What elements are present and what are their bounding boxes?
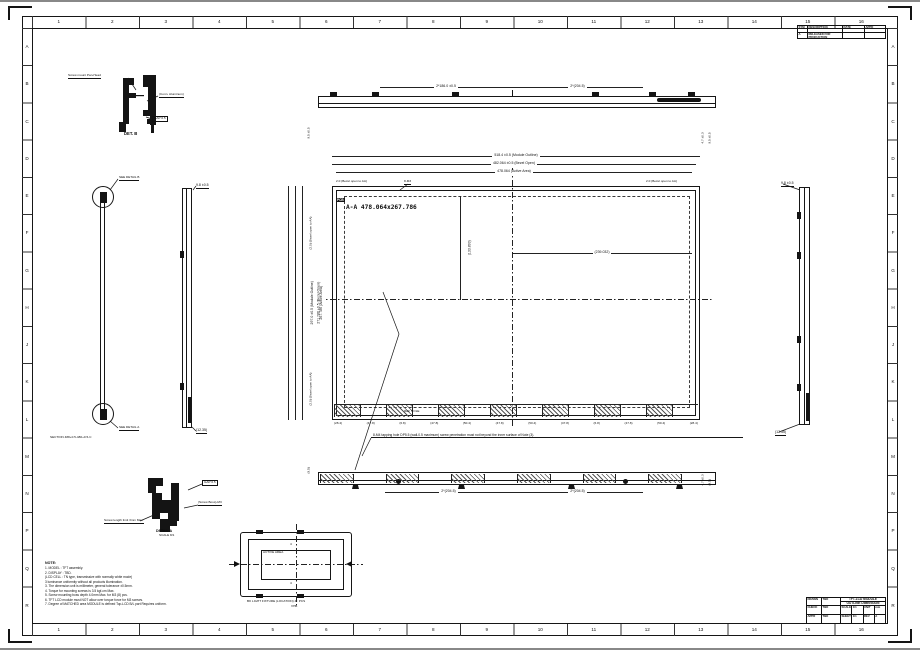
rev-col-description: DESCRIPTION — [808, 26, 843, 33]
zone-row-label: J — [22, 326, 32, 363]
title-block: DRAWN TBD CHECK TBD APPR TBD TFT-LCD MOD… — [806, 597, 886, 624]
mount-dim-value: (28.4) — [690, 421, 698, 425]
zone-col-label: 5 — [246, 16, 300, 28]
zone-col-label: 14 — [728, 624, 782, 636]
mount-strip-dims: (28.4)(47.8)(6.8)(47.8)(50.4)(47.8)(50.4… — [334, 421, 698, 425]
rev-col-appd: APPD — [865, 26, 885, 33]
mount-hole-callout: 8-M3 — [404, 180, 411, 185]
bottom-view-dim-right: 2*(204.5) — [512, 492, 643, 494]
zone-band-top: 12345678910111213141516 — [32, 16, 888, 28]
unit-value: mm — [875, 606, 885, 614]
check-label: CHECK — [807, 606, 822, 614]
rev-row-appd — [865, 33, 885, 39]
bottom-view-rot-dim-right2: (9.5) — [708, 479, 712, 485]
zone-row-label: F — [888, 214, 898, 251]
front-view-mount-strip — [334, 404, 698, 417]
top-view-dim-right: 2*(204.5) — [512, 87, 643, 89]
title-block-main: TFT-LCD MODULE OUTLINE DIMENSION SCALE 1… — [841, 598, 885, 623]
see-detail-a-label: SEE DETAIL A — [119, 426, 139, 431]
see-detail-b-label: SEE DETAIL B — [119, 176, 139, 181]
zone-row-label: R — [22, 587, 32, 624]
scale-value: 1/1 — [852, 606, 863, 614]
section-profile-line — [100, 196, 105, 416]
left-side-bottom-dim: (12.35) — [196, 428, 207, 434]
top-view-rot-dim-right1: 4.7 ±0.3 — [701, 132, 705, 143]
notes-list: 1. MODEL : TFT assembly.2. DISPLAY : TBD… — [45, 566, 245, 607]
zone-row-label: E — [22, 177, 32, 214]
fixture-pad-bottom-2 — [297, 594, 304, 598]
check-value: TBD — [822, 606, 841, 614]
detail-circle-bottom — [92, 403, 114, 425]
note-item: 7. Degree of MATCHED area MODULE is defi… — [45, 602, 245, 607]
zone-col-label: 12 — [621, 624, 675, 636]
mount-dim-value: (50.4) — [657, 421, 665, 425]
zone-band-right: ABCDEFGHJKLMNPQR — [888, 28, 898, 624]
dim-active-area-h: 478.064 (Active Area) — [336, 172, 692, 174]
zone-col-label: 7 — [353, 16, 407, 28]
zone-row-label: G — [888, 252, 898, 289]
zone-row-label: D — [22, 140, 32, 177]
fixture-active-area-label: ACTIVE AREA — [263, 551, 283, 555]
mount-dim-value: (28.4) — [334, 421, 342, 425]
zone-row-label: K — [22, 363, 32, 400]
detail-a-gap-label: GAP 0.5 — [202, 480, 218, 486]
left-side-top-dim: 9.8 ±0.5 — [196, 183, 209, 189]
zone-row-label: A — [888, 28, 898, 65]
appr-value: TBD — [822, 615, 841, 623]
bezel-open-offset-left: 2.0 (Bezel open to AA) — [336, 180, 367, 184]
zone-col-label: 10 — [514, 16, 568, 28]
zone-col-label: 10 — [514, 624, 568, 636]
rev-row-description: RELEASED FOR PRODUCTION — [808, 33, 843, 39]
top-view-rot-dim-left: 9.5 ±0.5 — [307, 127, 311, 138]
detail-b-gap-label: GAP 0.5 — [152, 116, 168, 122]
right-side-top-dim: 9.8 ±0.5 — [781, 181, 794, 187]
fixture-mark-bottom: 4 — [290, 582, 292, 586]
scale-label: SCALE — [841, 606, 852, 614]
right-side-tab-4 — [797, 384, 801, 391]
zone-band-left: ABCDEFGHJKLMNPQR — [22, 28, 32, 624]
zone-row-label: L — [888, 401, 898, 438]
mount-dim-value: (50.4) — [463, 421, 471, 425]
bottom-view-rot-dim-left: (9.5) — [307, 467, 311, 473]
zone-col-label: 8 — [407, 624, 461, 636]
detail-b-caption: DET. B — [124, 131, 137, 136]
bottom-view-dim-left: 2*(204.5) — [385, 492, 512, 494]
zone-row-label: D — [888, 140, 898, 177]
left-side-tab-2 — [180, 383, 184, 390]
zone-row-label: P — [22, 512, 32, 549]
zone-col-label: 8 — [407, 16, 461, 28]
mount-dim-value: (47.8) — [624, 421, 632, 425]
zone-row-label: R — [888, 587, 898, 624]
front-view-horizontal-centerline — [318, 299, 714, 300]
bottom-view-tab-2 — [458, 485, 465, 489]
bottom-view-tab-1 — [352, 485, 359, 489]
zone-row-label: G — [22, 252, 32, 289]
bezel-open-offset-bottom-rot: (2.0) (Bezel open to AA) — [309, 373, 313, 406]
zone-row-label: M — [22, 438, 32, 475]
zone-row-label: N — [22, 475, 32, 512]
bezel-open-offset-top-rot: (2.0) (Bezel open to AA) — [309, 217, 313, 250]
bottom-view-screw-1 — [396, 479, 401, 484]
rev-col-date: DATE — [843, 26, 865, 33]
zone-col-label: 16 — [835, 624, 889, 636]
zone-col-label: 2 — [86, 16, 140, 28]
top-view-rot-dim-right2: 9.5 ±0.5 — [708, 132, 712, 143]
zone-row-label: A — [22, 28, 32, 65]
right-side-view — [799, 187, 810, 425]
front-view-half-width-line: (239.032) — [512, 253, 692, 255]
right-side-tab-1 — [797, 212, 801, 219]
rev-row-sym: A — [798, 33, 808, 39]
zone-row-label: H — [888, 289, 898, 326]
zone-row-label: L — [22, 401, 32, 438]
zone-row-label: M — [888, 438, 898, 475]
rev-value: A — [875, 615, 885, 623]
zone-row-label: Q — [888, 550, 898, 587]
fixture-mark-top: 4 — [290, 543, 292, 547]
zone-col-label: 6 — [300, 624, 354, 636]
zone-row-label: E — [888, 177, 898, 214]
detail-a-screw-label: Screw length limit 3mm Max. — [104, 519, 144, 524]
mounting-note-underline: 8-M4 tapping hole DP5.5 (wall-0.5 maximu… — [371, 437, 743, 438]
zone-col-label: 11 — [567, 624, 621, 636]
zone-col-label: 2 — [86, 624, 140, 636]
zone-col-label: 14 — [728, 16, 782, 28]
revision-table: SYM DESCRIPTION DATE APPD A RELEASED FOR… — [797, 25, 886, 39]
page-edge-bottom — [0, 648, 920, 650]
mount-dim-value: (47.8) — [367, 421, 375, 425]
detail-b-frame-label: (Conn. Aluminum) — [159, 93, 184, 98]
zone-col-label: 4 — [193, 16, 247, 28]
top-view-tab-4 — [592, 92, 599, 96]
ref-hole-label: REF HOLE — [404, 410, 419, 414]
mount-dim-value: (50.4) — [528, 421, 536, 425]
zone-col-label: 15 — [781, 624, 835, 636]
front-view-vertical-centerline — [512, 168, 513, 426]
detail-a-boss-label: (Screw Boss)-M3 — [198, 501, 222, 506]
front-view-half-height-line: (133.893) — [460, 196, 480, 300]
zone-col-label: 3 — [139, 16, 193, 28]
bottom-view-rot-dim-right1: 4.7 ±0.3 — [701, 474, 705, 485]
zone-row-label: N — [888, 475, 898, 512]
dim-module-outline-h: 518.4 ±0.5 (Module Outline) — [332, 156, 700, 158]
zone-row-label: J — [888, 326, 898, 363]
zone-col-label: 6 — [300, 16, 354, 28]
mount-dim-value: (47.8) — [430, 421, 438, 425]
detail-b-mount-label: Screw mount Pan-Head — [68, 74, 101, 79]
zone-row-label: B — [22, 65, 32, 102]
top-view-dim-left: 2*186.0 ±0.5 — [380, 87, 512, 89]
fixture-arrow-right — [346, 561, 352, 567]
mount-dim-value: (47.8) — [561, 421, 569, 425]
right-side-bottom-dim: (12.35) — [775, 430, 786, 436]
front-view-active-area — [344, 196, 690, 408]
notes-title: NOTE: — [45, 561, 56, 565]
top-view-tab-2 — [372, 92, 379, 96]
zone-row-label: K — [888, 363, 898, 400]
zone-row-label: C — [22, 103, 32, 140]
fixture-pad-top-1 — [256, 530, 263, 534]
zone-band-bottom: 12345678910111213141516 — [32, 624, 888, 636]
zone-row-label: F — [22, 214, 32, 251]
sheet-label: SHEET — [841, 615, 852, 623]
bottom-view-hatch — [320, 474, 714, 483]
detail-circle-top — [92, 186, 114, 208]
zone-row-label: C — [888, 103, 898, 140]
fixture-pad-top-2 — [297, 530, 304, 534]
top-view-connector — [657, 98, 701, 102]
zone-col-label: 7 — [353, 624, 407, 636]
page-edge-top — [0, 0, 920, 2]
rev-row-date — [843, 33, 865, 39]
fixture-caption-2: VHB — [291, 605, 297, 609]
zone-col-label: 3 — [139, 624, 193, 636]
right-side-tab-3 — [797, 336, 801, 343]
mount-dim-value: (47.8) — [496, 421, 504, 425]
top-view-center-tick — [512, 90, 513, 96]
zone-row-label: Q — [22, 550, 32, 587]
drawn-value: TBD — [822, 598, 841, 606]
right-side-tab-2 — [797, 252, 801, 259]
title-block-signatures: DRAWN TBD CHECK TBD APPR TBD — [807, 598, 841, 623]
active-area-dimension-label: A-A 478.064x267.786 — [346, 204, 417, 211]
zone-col-label: 9 — [460, 624, 514, 636]
sheet-value: 1/1 — [852, 615, 863, 623]
drawing-sheet: 12345678910111213141516 1234567891011121… — [0, 0, 920, 651]
top-view-tab-1 — [330, 92, 337, 96]
mounting-note: 8-M4 tapping hole DP5.5 (wall-0.5 maximu… — [373, 433, 534, 437]
dim-bezel-open-h: 482.064 ±0.5 (Bezel Open) — [332, 164, 696, 166]
fixture-horizontal-centerline — [229, 564, 363, 565]
zone-col-label: 5 — [246, 624, 300, 636]
appr-label: APPR — [807, 615, 822, 623]
section-caption: SECTION 488+0.5-480+0.5-C — [50, 436, 91, 440]
zone-row-label: H — [22, 289, 32, 326]
bottom-view-screw-2 — [623, 479, 628, 484]
top-view-tab-5 — [649, 92, 656, 96]
zone-col-label: 13 — [674, 16, 728, 28]
top-view — [318, 96, 716, 108]
left-side-tab-1 — [180, 251, 184, 258]
zone-col-label: 4 — [193, 624, 247, 636]
mount-dim-value: (6.8) — [594, 421, 600, 425]
rev-label: REV — [864, 615, 875, 623]
zone-col-label: 13 — [674, 624, 728, 636]
zone-row-label: B — [888, 65, 898, 102]
fixture-pad-bottom-1 — [256, 594, 263, 598]
zone-col-label: 1 — [32, 624, 86, 636]
mount-dim-value: (6.8) — [399, 421, 405, 425]
detail-a-scale: SCALE 8/1 — [159, 534, 174, 538]
left-side-view — [182, 188, 192, 428]
top-view-tab-3 — [452, 92, 459, 96]
rev-col-sym: SYM — [798, 26, 808, 33]
zone-col-label: 1 — [32, 16, 86, 28]
zone-row-label: P — [888, 512, 898, 549]
unit-label: UNIT — [864, 606, 875, 614]
bezel-open-offset-right: 2.0 (Bezel open to AA) — [646, 180, 677, 184]
zone-col-label: 11 — [567, 16, 621, 28]
zone-col-label: 12 — [621, 16, 675, 28]
top-view-tab-6 — [688, 92, 695, 96]
bottom-view-tab-4 — [676, 485, 683, 489]
drawn-label: DRAWN — [807, 598, 822, 606]
zone-col-label: 9 — [460, 16, 514, 28]
